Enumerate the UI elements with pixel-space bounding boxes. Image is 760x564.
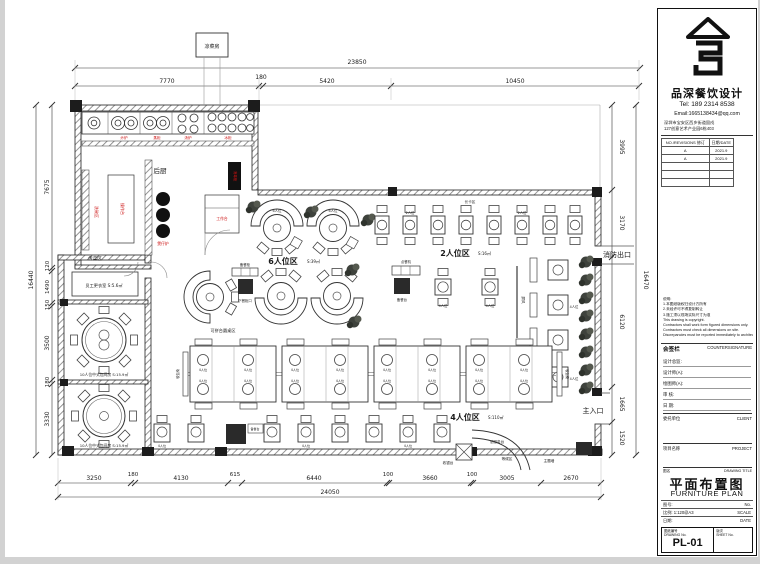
seat-label: 4人位 <box>486 303 495 308</box>
zone-area: S:16㎡ <box>478 250 491 256</box>
seat-label: 4人位 <box>244 367 252 372</box>
dim-label: 16470 <box>642 270 649 289</box>
zone-6-seat: 6人位 6人位 6人位区 S:39㎡ 可拼台圆桌区 备餐柜 下餐柜口 <box>151 200 376 334</box>
bench-label: 软包椅 <box>565 369 570 379</box>
claypot-stoves <box>156 192 170 238</box>
drawing-no-en: DRAWING No. <box>664 533 686 537</box>
seat-label: 4人位 <box>383 367 391 372</box>
dim-bottom: 3250 180 4130 615 6440 100 3660 100 3005… <box>55 458 604 500</box>
bottom-table-row: 4人位 4人位 4人位 备餐台 <box>154 416 450 449</box>
dim-label: 3005 <box>499 475 514 482</box>
dim-label: 7770 <box>159 78 174 85</box>
seat-label: 4人位 <box>199 367 207 372</box>
revision-cell <box>662 163 710 171</box>
revision-cell: 2021.9 <box>709 147 733 155</box>
bottom-service-station <box>226 424 246 444</box>
revision-cell <box>709 179 733 187</box>
dim-label: 1490 <box>45 280 51 294</box>
seat-label: 4人位 <box>336 367 344 372</box>
lot-boundary <box>258 105 600 190</box>
zone-label: 4人位区 <box>450 412 480 422</box>
kitchen-label: 后厨 <box>154 166 168 175</box>
equipment-label: 操作台 <box>120 203 126 215</box>
seat-label: 4人位 <box>158 443 166 448</box>
mid-4-seat-tables: 4人位 4人位 屏风 <box>435 266 525 338</box>
zone-label: 长卡区 <box>465 199 476 204</box>
revisions-col2: 日期/DATE <box>709 139 733 147</box>
entrance-column <box>576 442 592 455</box>
title-block: 品深餐饮设计 Tel: 189 2314 8538 Email:16651384… <box>657 8 757 556</box>
equipment-label: 汤炉 <box>184 135 192 140</box>
zone-label: 可拼台圆桌区 <box>210 327 235 334</box>
door-arc <box>151 262 167 278</box>
waiting-label: 等候区 <box>502 456 513 461</box>
seat-label: 4人位 <box>428 378 436 383</box>
seat-label: 4人位 <box>428 367 436 372</box>
zone-label: 6人位区 <box>268 256 298 266</box>
notes-block: 说明: 1.本图纸版权归设计方所有 2.未经许可不得复制转让 3.施工须以现场实… <box>663 297 753 339</box>
phone: Tel: 189 2314 8538 <box>658 101 756 108</box>
zone-label: 2人位区 <box>440 248 470 258</box>
zone-4-seat-block: 软包椅 软包椅 4人位4人位 4人位4人位 4人位4人位 4人位4人位 4人位4… <box>175 339 570 422</box>
equipment-label: 冰柜 <box>224 135 232 140</box>
meta-right: DATE <box>740 517 751 524</box>
address-line-2: 127创意艺术产业园6栋403 <box>664 126 714 132</box>
cashier-label: 收银台 <box>443 460 454 465</box>
dim-label: 120 <box>45 260 51 271</box>
round-table-row2 <box>184 264 363 329</box>
seat-label: 6人位 <box>273 208 283 213</box>
dim-label: 16440 <box>28 270 35 289</box>
dim-label: 7675 <box>44 179 51 194</box>
revision-cell: A <box>662 147 710 155</box>
dim-label: 3660 <box>422 475 437 482</box>
revision-cell <box>662 171 710 179</box>
screen-label: 屏风 <box>521 296 525 304</box>
dim-label: 100 <box>467 472 478 478</box>
dim-label: 150 <box>45 299 51 310</box>
dim-top: 23850 7770 180 5420 10450 <box>72 59 643 102</box>
station-label: 备餐台 <box>250 426 259 431</box>
revisions-table: NO./REVISIONS 修订 日期/DATE A2021.9 A2021.9 <box>661 138 734 187</box>
station-label: 备餐柜 <box>240 262 251 267</box>
page-edge-left <box>0 0 5 564</box>
zone-area: S:110㎡ <box>488 414 504 420</box>
email: Email:1665138434@qq.com <box>658 111 756 117</box>
revision-cell: 2021.9 <box>709 155 733 163</box>
seat-label: 4人位 <box>475 367 483 372</box>
floor-plan: 23850 7770 180 5420 10450 16440 7675 120… <box>0 0 656 564</box>
theme-wall-label: 主题墙 <box>544 458 555 463</box>
client-zh: 委托单位 <box>663 416 680 422</box>
dim-label: 3170 <box>618 215 625 230</box>
wall-columns <box>60 100 602 456</box>
equipment-label: 蒸柜 <box>153 135 161 140</box>
sheet-title-en: FURNITURE PLAN <box>658 489 756 498</box>
seat-label: 4人位 <box>383 378 391 383</box>
company-name: 品深餐饮设计 <box>658 85 756 101</box>
room-label: 员工更衣室 S:5.6㎡ <box>85 282 123 289</box>
station-label: 下餐柜口 <box>238 298 252 303</box>
dim-label: 6440 <box>306 475 321 482</box>
zone-area: S:39㎡ <box>307 258 320 264</box>
fire-exit-label: 消防出口 <box>603 250 631 259</box>
meta-left: 比例: 1:120@A3 <box>663 509 694 516</box>
page-edge-bottom <box>0 557 760 564</box>
countersign-en: COUNTERSIGNATURE <box>707 345 752 353</box>
seat-label: 4人位 <box>520 378 528 383</box>
walls <box>58 105 602 455</box>
pass-label: 传菜区 <box>88 255 102 262</box>
seat-label: 4人位 <box>475 378 483 383</box>
revisions-col1: NO./REVISIONS 修订 <box>662 139 710 147</box>
note-line: Discrepancies must be reported immediate… <box>663 333 753 338</box>
seat-label: 4人位 <box>291 367 299 372</box>
seat-label: 4人位 <box>244 378 252 383</box>
seat-label: 4人位 <box>302 443 310 448</box>
dim-label: 23850 <box>347 59 366 66</box>
countersign-zh: 会签栏 <box>663 345 680 353</box>
kitchen-zone: 炒炉 蒸柜 汤炉 冰柜 洗碗区 操作台 后厨 煲仔炉 工作台 消毒柜 传菜区 <box>82 112 254 262</box>
seat-label: 2人位 <box>518 210 527 215</box>
dim-label: 2670 <box>563 475 578 482</box>
service-station-b: 点餐机 备餐台 <box>392 259 420 302</box>
sheet-number-box: 图纸编号 DRAWING No. PL-01 版次 SHEET No. <box>661 527 753 553</box>
main-entrance: 主入口 <box>583 393 611 424</box>
revision-cell: A <box>662 155 710 163</box>
seat-label: 4人位 <box>336 378 344 383</box>
meta-left: 日期: <box>663 517 673 524</box>
sign-row: 设计总监: <box>663 356 751 367</box>
annex-label: 凉菜房 <box>204 43 219 50</box>
meta-rows: 图号:No. 比例: 1:120@A3SCALE 日期:DATE <box>661 500 753 524</box>
door-arc <box>205 230 230 255</box>
meta-right: SCALE <box>737 509 751 516</box>
dim-left: 16440 7675 120 1490 150 3500 180 3330 <box>28 102 55 458</box>
project-zh: 项目名称 <box>663 446 680 452</box>
zone-2-seat: 2人位 2人位 长卡区 2人位区 S:16㎡ <box>375 199 582 258</box>
dim-label: 1520 <box>618 430 625 445</box>
brand-logo-icon <box>686 17 730 79</box>
dim-label: 3500 <box>44 335 51 350</box>
kitchen-divider <box>145 160 152 255</box>
seat-label: 2人位 <box>406 210 415 215</box>
revision-cell <box>662 179 710 187</box>
entrance-label: 主入口 <box>583 406 604 415</box>
seat-label: 6人位 <box>329 208 339 213</box>
dim-label: 180 <box>45 376 51 387</box>
dim-label: 3250 <box>86 475 101 482</box>
seat-label: 4人位 <box>520 367 528 372</box>
seat-label: 4人位 <box>570 376 579 381</box>
wash-counter <box>82 170 89 250</box>
sign-row: 日 期: <box>663 400 751 411</box>
dim-label: 6120 <box>618 314 625 329</box>
kitchen-counter <box>82 141 254 146</box>
annex-room: 凉菜房 <box>196 33 228 105</box>
meta-left: 图号: <box>663 501 673 508</box>
seat-label: 4人位 <box>291 378 299 383</box>
dim-label: 4130 <box>173 475 188 482</box>
station-label: 点餐机 <box>401 259 412 264</box>
bench-label: 软包椅 <box>175 368 180 378</box>
sheet-number: PL-01 <box>662 537 713 549</box>
dim-right: 3995 3170 6120 1665 1520 16470 <box>609 102 649 458</box>
screenshot-root: { "plan": { "dims": { "top_total": "2385… <box>0 0 760 564</box>
sign-row: 绘图师(A): <box>663 378 751 389</box>
equipment-label: 消毒柜 <box>233 171 238 182</box>
dim-label: 5420 <box>319 78 334 85</box>
dim-label: 180 <box>128 472 139 478</box>
dim-label: 1665 <box>618 396 625 411</box>
dim-label: 615 <box>230 472 241 478</box>
meta-right: No. <box>744 501 751 508</box>
sign-row: 设计师(A): <box>663 367 751 378</box>
dim-label: 3330 <box>44 411 51 426</box>
dim-label: 100 <box>383 472 394 478</box>
dim-label: 10450 <box>505 78 524 85</box>
sign-row: 审 核: <box>663 389 751 400</box>
room-label: 10人位中式包间房 S:15.9㎡ <box>80 443 129 448</box>
dim-label: 180 <box>255 74 267 81</box>
countersign-rows: 设计总监: 设计师(A): 绘图师(A): 审 核: 日 期: <box>663 356 751 411</box>
room-label: 10人位中式包间房 S:15.9㎡ <box>80 372 129 377</box>
seat-label: 4人位 <box>199 378 207 383</box>
equipment-label: 炒炉 <box>120 135 128 140</box>
left-wing: 员工更衣室 S:5.6㎡ 10人位中式包间房 S:15.9㎡ 10人位中式包间房… <box>71 262 139 448</box>
client-en: CLIENT <box>737 416 752 422</box>
seat-label: 4人位 <box>404 443 412 448</box>
revision-cell <box>709 171 733 179</box>
reception-label: 总服务台 <box>490 439 505 444</box>
sheet-no-en: SHEET No. <box>716 533 733 537</box>
fire-exit: 消防出口 <box>601 246 634 264</box>
revision-cell <box>709 163 733 171</box>
seat-label: 4人位 <box>570 304 579 309</box>
dim-label: 3995 <box>618 139 625 154</box>
dim-label: 24050 <box>320 489 339 496</box>
equipment-label: 洗碗区 <box>94 206 100 218</box>
work-table <box>205 195 239 233</box>
equipment-label: 工作台 <box>216 216 228 221</box>
project-en: PROJECT <box>732 446 752 452</box>
station-label: 备餐台 <box>397 297 408 302</box>
equipment-label: 煲仔炉 <box>157 241 169 246</box>
seat-label: 4人位 <box>439 303 448 308</box>
